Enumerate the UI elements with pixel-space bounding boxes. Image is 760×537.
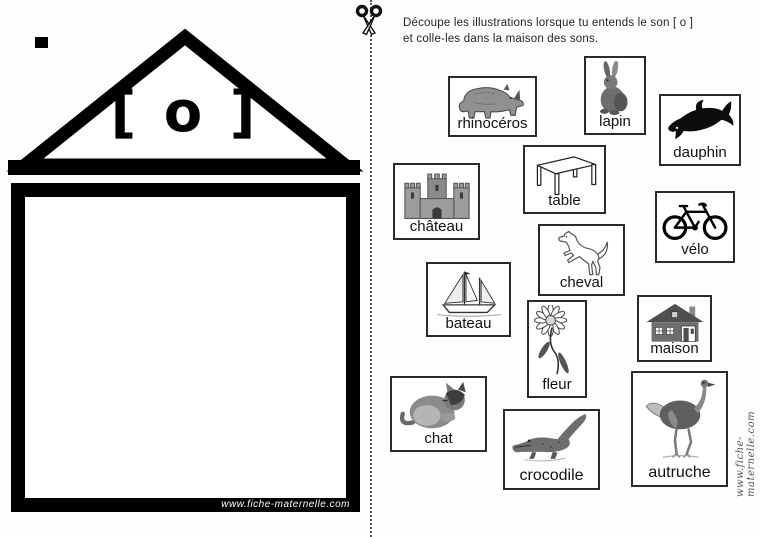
instructions: Découpe les illustrations lorsque tu ent… [403,15,733,47]
card-fleur: fleur [527,300,587,398]
card-crocodile: crocodile [503,409,600,490]
card-label: cheval [540,274,623,291]
card-velo: vélo [655,191,735,263]
instruction-line-2: et colle-les dans la maison des sons. [403,31,733,47]
card-chateau: château [393,163,480,240]
cat-image [395,381,483,431]
card-label: vélo [657,241,733,258]
card-cheval: cheval [538,224,625,296]
card-label: dauphin [661,144,739,161]
house-image [642,300,708,343]
house-body [11,183,360,512]
table-image [526,150,604,196]
card-chat: chat [390,376,487,452]
crocodile-image [508,414,596,466]
worksheet-page: Découpe les illustrations lorsque tu ent… [0,0,760,537]
card-label: lapin [586,113,644,130]
card-label: chat [392,430,485,447]
card-label: table [525,192,604,209]
card-lapin: lapin [584,56,646,135]
ostrich-image [637,376,723,464]
card-label: bateau [428,315,509,332]
card-label: maison [639,340,710,357]
card-bateau: bateau [426,262,511,337]
card-label: château [395,218,478,235]
sailboat-image [430,267,508,317]
house-phoneme: [ o ] [95,80,275,145]
card-label: rhinocéros [450,115,535,132]
card-table: table [523,145,606,214]
horse-image [544,229,620,277]
house-watermark: www.fiche-maternelle.com [178,499,350,510]
card-dauphin: dauphin [659,94,741,166]
dolphin-image [663,99,737,145]
card-label: fleur [529,376,585,393]
rabbit-image [592,61,638,117]
card-label: autruche [633,464,726,482]
castle-image [398,168,476,220]
instruction-line-1: Découpe les illustrations lorsque tu ent… [403,15,733,31]
card-rhinoceros: rhinocéros [448,76,537,137]
flower-image [532,305,582,379]
card-autruche: autruche [631,371,728,487]
card-maison: maison [637,295,712,362]
side-watermark: www.fiche-maternelle.com [735,372,757,497]
card-label: crocodile [505,467,598,485]
bicycle-image [659,196,731,242]
